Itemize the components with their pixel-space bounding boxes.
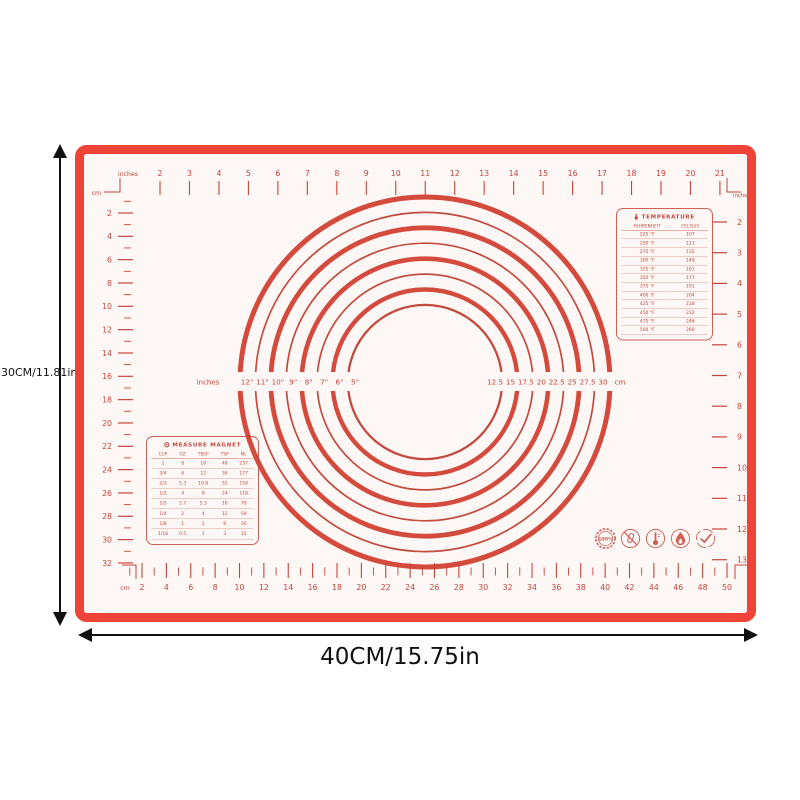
circle-cm-label: 15	[506, 378, 515, 387]
table-cell: 1	[152, 458, 175, 468]
ruler-label: 6	[275, 169, 280, 178]
ruler-label: 26	[102, 489, 112, 498]
column-header: ML	[234, 450, 254, 458]
circle-cm-label: 17.5	[518, 378, 534, 387]
ruler-label: 10	[737, 463, 747, 472]
ruler-label: 50	[722, 583, 732, 592]
measure-conversion-grid: CUPOZTBSPTSPML 1816482373/4612361772/35.…	[152, 450, 254, 539]
ruler-label: 13	[737, 556, 747, 565]
thermometer-icon	[634, 214, 639, 221]
ruler-label: 22	[381, 583, 391, 592]
ruler-label: 17	[597, 169, 607, 178]
ruler-label: 22	[102, 442, 112, 451]
table-cell: 12	[216, 509, 234, 519]
table-cell: 2	[191, 519, 216, 529]
ruler-label: 7	[737, 371, 742, 380]
table-cell: 2.7	[175, 499, 191, 509]
check-icon	[694, 527, 717, 550]
table-cell: 4	[191, 509, 216, 519]
circle-cm-label: 12.5	[487, 378, 503, 387]
table-cell: 475 °F	[622, 317, 674, 326]
table-row: 1/32.75.31679	[152, 499, 254, 509]
table-cell: 204	[673, 291, 707, 300]
table-row: 1/812630	[152, 519, 254, 529]
ruler-label: 12	[259, 583, 269, 592]
measure-cup-icon	[164, 442, 170, 448]
table-cell: 1/16	[152, 529, 175, 539]
table-cell: 32	[216, 478, 234, 488]
ruler-label: 18	[627, 169, 637, 178]
table-row: 225 °F107	[622, 230, 708, 239]
table-cell: 275 °F	[622, 248, 674, 257]
ruler-label: 2	[158, 169, 163, 178]
ruler-label: 28	[102, 512, 112, 521]
table-cell: 1/3	[152, 499, 175, 509]
badge-100-percent-icon: 100%	[594, 527, 617, 550]
circle-unit-cm: cm	[615, 379, 626, 387]
measure-table: MEASURE MAGNET CUPOZTBSPTSPML 1816482373…	[146, 436, 259, 545]
up-arrowhead-icon	[53, 144, 67, 158]
table-row: 1/24824118	[152, 489, 254, 499]
ruler-label: 12	[450, 169, 460, 178]
ruler-label: 11	[737, 494, 747, 503]
ruler-label: 19	[656, 169, 666, 178]
corner-bracket-bottom-right	[735, 565, 749, 579]
circle-cm-label: 22.5	[549, 378, 565, 387]
ruler-label: 20	[356, 583, 366, 592]
ruler-label: 2	[107, 209, 112, 218]
ruler-label: 3	[737, 249, 742, 258]
circle-inch-label: 9"	[289, 378, 297, 387]
table-row: 450 °F232	[622, 308, 708, 317]
table-row: 400 °F204	[622, 291, 708, 300]
ruler-label: 6	[737, 341, 742, 350]
table-cell: 0.5	[175, 529, 191, 539]
circle-cm-label: 30	[598, 378, 608, 387]
table-cell: 2	[175, 509, 191, 519]
corner-bracket-bottom-left	[122, 565, 136, 579]
table-cell: 4	[175, 489, 191, 499]
svg-text:100%: 100%	[598, 536, 613, 542]
ruler-label: 32	[503, 583, 513, 592]
table-cell: 135	[673, 248, 707, 257]
table-cell: 425 °F	[622, 300, 674, 309]
ruler-label: 2	[737, 218, 742, 227]
ruler-label: 8	[737, 402, 742, 411]
table-row: 250 °F121	[622, 239, 708, 248]
circle-inch-label: 10"	[272, 378, 284, 387]
ruler-label: 10	[102, 302, 112, 311]
ruler-label: 11	[420, 169, 430, 178]
ruler-label: 4	[164, 583, 169, 592]
height-dimension-label: 30CM/11.81in	[1, 366, 77, 379]
table-row: 275 °F135	[622, 248, 708, 257]
table-cell: 400 °F	[622, 291, 674, 300]
ruler-label: 8	[334, 169, 339, 178]
ruler-label: 10	[391, 169, 401, 178]
ruler-label: 3	[187, 169, 192, 178]
table-cell: 350 °F	[622, 274, 674, 283]
ruler-label: 2	[140, 583, 145, 592]
circle-inch-label: 12"	[241, 378, 253, 387]
ruler-label: 38	[576, 583, 586, 592]
width-dimension-line	[88, 634, 746, 636]
ruler-label: 40	[600, 583, 610, 592]
ruler-label: 8	[107, 279, 112, 288]
circle-cm-label: 20	[537, 378, 547, 387]
table-cell: 3	[216, 529, 234, 539]
ruler-label: 30	[102, 535, 112, 544]
certification-badges: 100%	[594, 527, 717, 550]
table-cell: 177	[234, 468, 254, 478]
flame-icon	[669, 527, 692, 550]
top-ruler-unit-left: inches	[118, 171, 138, 178]
column-header: OZ	[175, 450, 191, 458]
column-header: TSP	[216, 450, 234, 458]
column-header: TBSP	[191, 450, 216, 458]
table-cell: 30	[234, 519, 254, 529]
right-arrowhead-icon	[744, 628, 758, 642]
ruler-label: 9	[364, 169, 369, 178]
table-cell: 118	[234, 489, 254, 499]
table-cell: 10.6	[191, 478, 216, 488]
table-cell: 149	[673, 256, 707, 265]
temperature-conversion-grid: FAHRENHEITCELSIUS 225 °F107250 °F121275 …	[622, 222, 708, 335]
table-cell: 375 °F	[622, 282, 674, 291]
ruler-label: 34	[527, 583, 537, 592]
column-header: FAHRENHEIT	[622, 222, 674, 230]
table-cell: 12	[191, 468, 216, 478]
ruler-label: 7	[305, 169, 310, 178]
table-row: 475 °F246	[622, 317, 708, 326]
table-row: 1/4241259	[152, 509, 254, 519]
column-header: CUP	[152, 450, 175, 458]
baking-mat: inches12"11"10"9"8"7"6"5"12.51517.52022.…	[75, 145, 756, 622]
ruler-label: 5	[246, 169, 251, 178]
table-row: 325 °F163	[622, 265, 708, 274]
table-cell: 158	[234, 478, 254, 488]
table-cell: 2/3	[152, 478, 175, 488]
ruler-label: 13	[479, 169, 489, 178]
ruler-label: 48	[698, 583, 708, 592]
table-cell: 24	[216, 489, 234, 499]
corner-bracket-top-right	[727, 178, 741, 192]
circle-inch-label: 6"	[336, 378, 344, 387]
table-cell: 246	[673, 317, 707, 326]
table-row: 2/35.310.632158	[152, 478, 254, 488]
height-dimension-line	[59, 156, 61, 614]
ruler-label: 6	[107, 255, 112, 264]
bottom-ruler: cm24681012141618202224262830323436384042…	[120, 563, 749, 592]
ruler-label: 26	[430, 583, 440, 592]
table-cell: 5.3	[191, 499, 216, 509]
circle-inch-label: 7"	[320, 378, 328, 387]
temperature-table: TEMPERATURE FAHRENHEITCELSIUS 225 °F1072…	[616, 208, 713, 340]
ruler-label: 14	[283, 583, 293, 592]
ruler-label: 4	[216, 169, 221, 178]
circle-cm-label: 27.5	[580, 378, 596, 387]
table-cell: 8	[175, 458, 191, 468]
ruler-label: 21	[715, 169, 725, 178]
table-cell: 237	[234, 458, 254, 468]
left-ruler: 2468101214161820222426283032	[102, 201, 136, 579]
table-cell: 1	[191, 529, 216, 539]
top-ruler: inches23456789101112131415161718192021cm…	[92, 169, 751, 199]
table-cell: 3/4	[152, 468, 175, 478]
ruler-label: 16	[102, 372, 112, 381]
table-cell: 225 °F	[622, 230, 674, 239]
table-cell: 1/8	[152, 519, 175, 529]
table-row: 181648237	[152, 458, 254, 468]
ruler-label: 20	[685, 169, 695, 178]
ruler-label: 14	[102, 349, 112, 358]
temperature-table-title: TEMPERATURE	[622, 211, 708, 222]
measure-table-title: MEASURE MAGNET	[152, 439, 254, 450]
top-ruler-unit-corner: cm	[92, 190, 101, 197]
table-cell: 15	[234, 529, 254, 539]
table-cell: 121	[673, 239, 707, 248]
table-cell: 232	[673, 308, 707, 317]
ruler-label: 28	[454, 583, 464, 592]
table-row: 300 °F149	[622, 256, 708, 265]
ruler-label: 6	[188, 583, 193, 592]
table-cell: 8	[191, 489, 216, 499]
table-cell: 79	[234, 499, 254, 509]
table-cell: 6	[175, 468, 191, 478]
corner-bracket-top-left	[104, 178, 120, 192]
ruler-label: 8	[213, 583, 218, 592]
ruler-label: 18	[332, 583, 342, 592]
table-cell: 260	[673, 326, 707, 335]
table-cell: 325 °F	[622, 265, 674, 274]
table-cell: 48	[216, 458, 234, 468]
right-ruler: 2345678910111213	[712, 218, 747, 565]
circle-inch-label: 5"	[351, 378, 359, 387]
table-row: 3/461236177	[152, 468, 254, 478]
table-row: 375 °F191	[622, 282, 708, 291]
ruler-label: 5	[737, 310, 742, 319]
table-cell: 191	[673, 282, 707, 291]
ruler-label: 30	[478, 583, 488, 592]
ruler-label: 32	[102, 559, 112, 568]
ruler-label: 24	[102, 465, 112, 474]
column-header: CELSIUS	[673, 222, 707, 230]
table-row: 425 °F218	[622, 300, 708, 309]
table-cell: 107	[673, 230, 707, 239]
no-bpa-icon	[619, 527, 642, 550]
table-cell: 1/4	[152, 509, 175, 519]
table-cell: 1	[175, 519, 191, 529]
ruler-label: 36	[551, 583, 561, 592]
table-cell: 250 °F	[622, 239, 674, 248]
down-arrowhead-icon	[53, 612, 67, 626]
ruler-label: 15	[538, 169, 548, 178]
ruler-label: 44	[649, 583, 659, 592]
table-cell: 177	[673, 274, 707, 283]
product-image: 30CM/11.81in 40CM/15.75in inches12"11"10…	[0, 0, 800, 800]
table-cell: 36	[216, 468, 234, 478]
table-cell: 450 °F	[622, 308, 674, 317]
circle-inch-label: 11"	[256, 378, 268, 387]
ruler-label: 4	[737, 279, 742, 288]
ruler-label: 12	[737, 525, 747, 534]
table-cell: 163	[673, 265, 707, 274]
table-cell: 59	[234, 509, 254, 519]
ruler-label: 16	[308, 583, 318, 592]
width-dimension-label: 40CM/15.75in	[0, 644, 800, 670]
table-cell: 16	[191, 458, 216, 468]
ruler-label: 9	[737, 433, 742, 442]
ruler-label: 14	[509, 169, 519, 178]
table-row: 350 °F177	[622, 274, 708, 283]
circle-cm-label: 25	[568, 378, 577, 387]
table-cell: 500 °F	[622, 326, 674, 335]
circle-inch-label: 8"	[305, 378, 313, 387]
table-cell: 1/2	[152, 489, 175, 499]
circle-unit-inches: inches	[197, 379, 220, 387]
ruler-label: 46	[673, 583, 683, 592]
table-cell: 16	[216, 499, 234, 509]
left-arrowhead-icon	[78, 628, 92, 642]
ruler-label: 20	[102, 419, 112, 428]
ruler-label: 10	[235, 583, 245, 592]
ruler-label: 12	[102, 325, 112, 334]
ruler-label: 4	[107, 232, 112, 241]
ruler-label: 18	[102, 395, 112, 404]
table-cell: 6	[216, 519, 234, 529]
table-cell: 5.3	[175, 478, 191, 488]
bottom-ruler-unit: cm	[120, 585, 129, 592]
ruler-label: 16	[568, 169, 578, 178]
table-row: 500 °F260	[622, 326, 708, 335]
ruler-label: 24	[405, 583, 415, 592]
table-row: 1/160.51315	[152, 529, 254, 539]
thermometer-badge-icon	[644, 527, 667, 550]
table-cell: 218	[673, 300, 707, 309]
table-cell: 300 °F	[622, 256, 674, 265]
ruler-label: 42	[625, 583, 635, 592]
